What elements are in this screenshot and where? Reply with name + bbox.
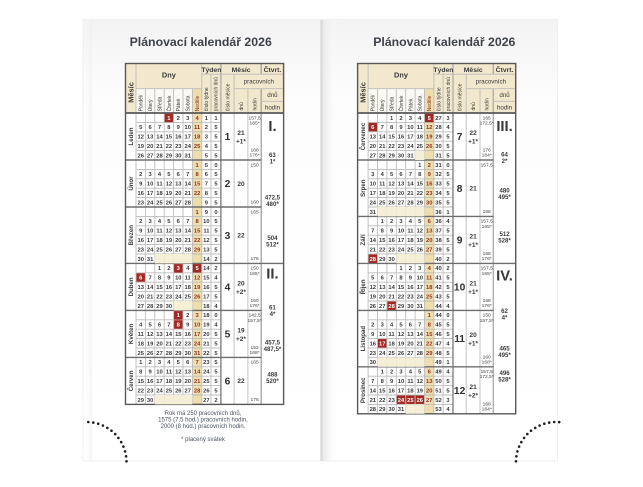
svg-text:13: 13: [175, 182, 182, 188]
svg-text:15: 15: [137, 379, 144, 385]
svg-text:16: 16: [184, 332, 191, 338]
svg-text:11: 11: [156, 229, 163, 235]
svg-text:15: 15: [203, 276, 210, 282]
svg-text:Čtvrt.: Čtvrt.: [264, 65, 282, 74]
svg-text:2: 2: [214, 398, 217, 404]
svg-text:30: 30: [435, 144, 441, 150]
svg-text:14: 14: [370, 388, 377, 394]
svg-text:4*: 4*: [270, 311, 276, 318]
svg-text:15: 15: [194, 229, 201, 235]
svg-text:18: 18: [388, 341, 395, 347]
svg-text:24: 24: [156, 388, 163, 394]
svg-text:+2*: +2*: [236, 336, 246, 343]
svg-text:25: 25: [426, 294, 433, 300]
svg-text:51: 51: [435, 388, 442, 394]
svg-text:160: 160: [251, 200, 259, 206]
svg-text:Týden: Týden: [201, 67, 221, 74]
svg-text:23: 23: [203, 360, 210, 366]
svg-text:22: 22: [203, 351, 209, 357]
svg-text:2: 2: [409, 266, 412, 272]
svg-text:495*: 495*: [498, 352, 511, 359]
svg-text:152: 152: [251, 345, 259, 351]
svg-text:Sobota: Sobota: [186, 95, 192, 111]
svg-text:27: 27: [426, 398, 432, 404]
svg-text:12: 12: [137, 135, 143, 141]
svg-text:7: 7: [167, 323, 170, 329]
svg-text:18: 18: [379, 191, 386, 197]
svg-text:7: 7: [371, 379, 374, 385]
svg-text:23: 23: [398, 144, 405, 150]
svg-text:27: 27: [203, 398, 209, 404]
svg-text:27: 27: [398, 200, 404, 206]
svg-text:25: 25: [184, 294, 191, 300]
svg-text:20: 20: [398, 191, 404, 197]
svg-text:21: 21: [194, 379, 201, 385]
svg-text:19: 19: [417, 238, 424, 244]
svg-text:12: 12: [417, 229, 423, 235]
svg-text:168*: 168*: [250, 350, 260, 356]
svg-text:22: 22: [398, 294, 404, 300]
svg-text:16: 16: [398, 135, 405, 141]
svg-text:29: 29: [194, 247, 201, 253]
svg-text:13: 13: [175, 229, 182, 235]
svg-text:10: 10: [203, 219, 209, 225]
svg-text:24: 24: [147, 200, 154, 206]
svg-text:49: 49: [435, 370, 442, 376]
svg-text:25: 25: [407, 247, 414, 253]
svg-text:20: 20: [469, 332, 477, 339]
svg-text:49: 49: [435, 360, 442, 366]
svg-text:Červen: Červen: [128, 370, 135, 391]
svg-text:číslo týdne: číslo týdne: [204, 87, 210, 111]
svg-text:Pátek: Pátek: [176, 98, 182, 111]
svg-text:24: 24: [398, 398, 405, 404]
svg-text:31: 31: [184, 153, 191, 159]
svg-text:I.: I.: [268, 119, 276, 135]
svg-text:11: 11: [166, 370, 173, 376]
svg-text:25: 25: [417, 144, 424, 150]
svg-text:dnů: dnů: [267, 92, 278, 99]
svg-text:176: 176: [251, 397, 259, 403]
svg-text:26: 26: [166, 247, 173, 253]
svg-text:487,5*: 487,5*: [264, 346, 282, 353]
svg-text:2: 2: [390, 219, 393, 225]
svg-text:13: 13: [398, 182, 405, 188]
svg-text:157,5: 157,5: [481, 266, 494, 272]
svg-text:16: 16: [137, 191, 144, 197]
svg-text:480*: 480*: [266, 201, 279, 208]
svg-text:Měsíc: Měsíc: [359, 82, 368, 103]
svg-text:11: 11: [426, 276, 433, 282]
svg-text:23: 23: [407, 294, 414, 300]
svg-text:21: 21: [407, 191, 414, 197]
svg-text:23: 23: [137, 200, 144, 206]
svg-text:dnů: dnů: [238, 102, 245, 111]
svg-text:12: 12: [203, 238, 209, 244]
svg-text:38: 38: [435, 238, 442, 244]
svg-text:Týden: Týden: [433, 67, 453, 74]
svg-text:25: 25: [156, 247, 163, 253]
svg-text:2: 2: [139, 219, 142, 225]
svg-text:2: 2: [390, 370, 393, 376]
svg-text:20: 20: [175, 191, 181, 197]
svg-text:20: 20: [237, 181, 245, 188]
svg-text:10: 10: [398, 379, 404, 385]
svg-text:12: 12: [426, 125, 432, 131]
svg-text:Dny: Dny: [162, 71, 177, 80]
svg-text:24: 24: [203, 370, 210, 376]
svg-text:10: 10: [147, 229, 153, 235]
svg-text:26: 26: [137, 153, 144, 159]
svg-text:17: 17: [194, 332, 200, 338]
svg-text:25: 25: [388, 351, 395, 357]
svg-text:46: 46: [435, 332, 442, 338]
svg-text:17: 17: [175, 285, 181, 291]
svg-text:26: 26: [426, 144, 433, 150]
svg-text:184*: 184*: [482, 406, 492, 412]
svg-text:3: 3: [225, 231, 231, 242]
svg-text:7: 7: [371, 229, 374, 235]
svg-text:43: 43: [435, 294, 442, 300]
svg-text:20: 20: [175, 238, 181, 244]
svg-text:17: 17: [398, 238, 404, 244]
svg-text:23: 23: [175, 144, 182, 150]
svg-text:1*: 1*: [270, 159, 276, 166]
svg-text:II.: II.: [266, 267, 278, 283]
svg-text:2: 2: [446, 257, 449, 263]
svg-text:číslo měsíce: číslo měsíce: [457, 83, 463, 111]
svg-text:29: 29: [379, 257, 386, 263]
svg-text:12: 12: [454, 386, 466, 397]
svg-text:21: 21: [156, 144, 163, 150]
svg-text:Srpen: Srpen: [360, 179, 367, 197]
svg-text:Pátek: Pátek: [408, 98, 414, 111]
svg-text:20: 20: [147, 144, 153, 150]
svg-text:16: 16: [426, 182, 433, 188]
svg-text:17: 17: [147, 191, 153, 197]
svg-text:19: 19: [175, 379, 182, 385]
svg-text:Plánovací kalendář 2026: Plánovací kalendář 2026: [130, 35, 272, 49]
svg-text:6: 6: [225, 377, 231, 388]
svg-text:176: 176: [251, 256, 259, 262]
svg-text:21: 21: [379, 144, 386, 150]
svg-text:24: 24: [194, 341, 201, 347]
svg-text:16: 16: [175, 135, 182, 141]
svg-text:22: 22: [388, 144, 394, 150]
svg-text:Úterý: Úterý: [147, 99, 154, 111]
svg-text:17: 17: [417, 285, 423, 291]
svg-text:18: 18: [156, 191, 163, 197]
svg-text:31: 31: [194, 351, 201, 357]
svg-text:27: 27: [137, 304, 143, 310]
svg-text:160: 160: [483, 354, 491, 360]
svg-text:7: 7: [418, 323, 421, 329]
svg-text:19: 19: [417, 388, 424, 394]
svg-text:Čtvrtek: Čtvrtek: [398, 95, 405, 111]
svg-text:16: 16: [137, 238, 144, 244]
svg-text:13: 13: [426, 379, 433, 385]
svg-text:28: 28: [435, 125, 442, 131]
svg-text:18: 18: [407, 388, 414, 394]
svg-text:7: 7: [186, 219, 189, 225]
svg-text:Středa: Středa: [390, 96, 396, 111]
svg-text:14: 14: [417, 332, 424, 338]
svg-text:26: 26: [166, 200, 173, 206]
svg-text:165*: 165*: [250, 120, 260, 126]
svg-text:13: 13: [370, 135, 377, 141]
svg-text:22: 22: [469, 130, 477, 137]
svg-text:31: 31: [407, 153, 414, 159]
svg-text:157,5: 157,5: [481, 162, 494, 168]
svg-text:37: 37: [435, 229, 441, 235]
svg-text:32: 32: [435, 172, 441, 178]
svg-text:13: 13: [156, 332, 163, 338]
svg-text:30: 30: [407, 304, 413, 310]
svg-text:22: 22: [156, 294, 162, 300]
svg-text:2: 2: [205, 125, 208, 131]
svg-text:12: 12: [175, 370, 181, 376]
svg-text:17: 17: [407, 135, 413, 141]
svg-text:21: 21: [147, 294, 154, 300]
svg-text:17: 17: [370, 191, 376, 197]
svg-text:15: 15: [426, 332, 433, 338]
svg-text:23: 23: [184, 341, 191, 347]
svg-text:0: 0: [214, 163, 217, 169]
svg-text:19: 19: [147, 341, 154, 347]
svg-text:20: 20: [237, 281, 245, 288]
svg-text:15: 15: [388, 135, 395, 141]
svg-text:17: 17: [156, 379, 162, 385]
svg-text:14: 14: [203, 257, 210, 263]
svg-text:11: 11: [417, 125, 424, 131]
svg-text:22: 22: [379, 398, 385, 404]
svg-text:26: 26: [203, 388, 210, 394]
svg-text:Středa: Středa: [157, 96, 163, 111]
svg-text:pracovních: pracovních: [476, 79, 507, 86]
svg-text:Měsíc: Měsíc: [126, 82, 135, 103]
svg-text:176*: 176*: [482, 256, 492, 262]
svg-text:26: 26: [388, 200, 395, 206]
svg-text:+2*: +2*: [468, 392, 478, 399]
svg-text:31: 31: [370, 210, 377, 216]
svg-text:157,5: 157,5: [248, 115, 261, 121]
svg-text:157,5: 157,5: [481, 219, 494, 225]
svg-text:495*: 495*: [498, 194, 511, 201]
svg-text:28: 28: [166, 351, 173, 357]
svg-text:18: 18: [407, 238, 414, 244]
svg-text:165: 165: [483, 115, 491, 121]
svg-text:0: 0: [446, 313, 449, 319]
svg-text:12: 12: [166, 229, 172, 235]
svg-text:Červenec: Červenec: [360, 122, 367, 150]
svg-text:18: 18: [417, 135, 424, 141]
svg-text:21: 21: [370, 398, 377, 404]
svg-text:2: 2: [371, 323, 374, 329]
svg-text:Pondělí: Pondělí: [139, 94, 145, 112]
svg-text:+1*: +1*: [468, 341, 478, 348]
svg-text:28: 28: [194, 388, 201, 394]
svg-text:528*: 528*: [498, 237, 511, 244]
svg-text:10: 10: [454, 283, 466, 294]
svg-text:30: 30: [388, 257, 394, 263]
svg-text:0: 0: [446, 163, 449, 169]
svg-text:25: 25: [379, 200, 386, 206]
svg-text:26: 26: [175, 388, 182, 394]
svg-text:12: 12: [370, 285, 376, 291]
svg-text:22: 22: [194, 238, 200, 244]
svg-text:22: 22: [237, 233, 245, 240]
svg-text:11: 11: [379, 182, 386, 188]
svg-text:42: 42: [435, 285, 441, 291]
svg-text:Neděle: Neděle: [195, 95, 201, 111]
svg-text:41: 41: [435, 276, 442, 282]
svg-text:23: 23: [166, 294, 173, 300]
svg-text:17: 17: [147, 238, 153, 244]
svg-text:14: 14: [203, 266, 210, 272]
svg-text:26: 26: [147, 351, 154, 357]
svg-text:30: 30: [388, 407, 394, 413]
svg-text:26: 26: [417, 247, 424, 253]
svg-text:0: 0: [214, 210, 217, 216]
svg-text:40: 40: [435, 257, 441, 263]
svg-text:21: 21: [184, 191, 191, 197]
svg-text:53: 53: [435, 407, 442, 413]
svg-text:28: 28: [370, 257, 377, 263]
svg-text:2: 2: [177, 116, 180, 122]
svg-text:24: 24: [407, 144, 414, 150]
svg-text:165*: 165*: [250, 271, 260, 277]
svg-text:12: 12: [166, 182, 172, 188]
svg-text:13: 13: [147, 135, 154, 141]
svg-text:10: 10: [156, 370, 162, 376]
svg-text:4: 4: [225, 283, 231, 294]
svg-text:7: 7: [148, 276, 151, 282]
svg-text:28: 28: [147, 304, 154, 310]
svg-text:Březen: Březen: [128, 225, 135, 246]
svg-text:29: 29: [175, 351, 182, 357]
svg-text:15: 15: [175, 332, 182, 338]
svg-text:2: 2: [167, 266, 170, 272]
svg-text:15: 15: [194, 182, 201, 188]
svg-text:15: 15: [379, 238, 386, 244]
svg-text:18: 18: [166, 379, 173, 385]
svg-text:14: 14: [184, 182, 191, 188]
svg-text:160: 160: [251, 298, 259, 304]
svg-text:29: 29: [435, 135, 442, 141]
svg-text:30: 30: [426, 200, 432, 206]
svg-text:28: 28: [417, 351, 424, 357]
svg-text:10: 10: [407, 125, 413, 131]
svg-text:31: 31: [435, 153, 442, 159]
svg-text:28: 28: [407, 200, 414, 206]
svg-text:27: 27: [379, 304, 385, 310]
svg-text:Pondělí: Pondělí: [371, 94, 377, 112]
svg-text:30: 30: [166, 304, 172, 310]
svg-text:10: 10: [370, 182, 376, 188]
svg-text:27: 27: [407, 351, 413, 357]
svg-text:22: 22: [426, 341, 432, 347]
svg-text:16: 16: [203, 285, 210, 291]
svg-text:7: 7: [195, 360, 198, 366]
svg-text:24: 24: [370, 200, 377, 206]
svg-text:33: 33: [435, 182, 442, 188]
svg-text:21: 21: [469, 186, 477, 193]
svg-text:2*: 2*: [502, 158, 508, 165]
svg-text:168: 168: [483, 298, 491, 304]
svg-text:+2*: +2*: [236, 289, 246, 296]
svg-text:27: 27: [175, 200, 181, 206]
svg-text:168: 168: [251, 148, 259, 154]
svg-text:16: 16: [147, 379, 154, 385]
svg-text:IV.: IV.: [496, 268, 513, 284]
svg-text:39: 39: [435, 247, 442, 253]
svg-text:+1*: +1*: [468, 242, 478, 249]
svg-text:30: 30: [147, 398, 153, 404]
svg-text:+1*: +1*: [236, 139, 246, 146]
svg-text:30: 30: [370, 360, 376, 366]
svg-text:27: 27: [175, 247, 181, 253]
svg-text:14: 14: [147, 285, 154, 291]
svg-text:30: 30: [184, 351, 190, 357]
svg-text:528*: 528*: [498, 376, 511, 383]
svg-text:50: 50: [435, 379, 441, 385]
svg-text:Říjen: Říjen: [359, 279, 367, 294]
svg-text:29: 29: [379, 407, 386, 413]
svg-text:Plánovací kalendář 2026: Plánovací kalendář 2026: [373, 35, 515, 49]
svg-text:Duben: Duben: [128, 277, 135, 296]
svg-text:7: 7: [381, 125, 384, 131]
svg-text:21: 21: [184, 238, 191, 244]
svg-text:20: 20: [184, 379, 190, 385]
svg-text:29: 29: [417, 200, 424, 206]
svg-text:157,5*: 157,5*: [480, 318, 494, 324]
svg-text:dnů: dnů: [470, 102, 477, 111]
svg-text:44: 44: [435, 313, 442, 319]
svg-text:36: 36: [435, 219, 442, 225]
svg-text:25: 25: [137, 351, 144, 357]
svg-text:1: 1: [225, 132, 231, 143]
svg-text:23: 23: [137, 247, 144, 253]
svg-text:15: 15: [156, 285, 163, 291]
svg-text:23: 23: [370, 351, 377, 357]
svg-text:52: 52: [435, 398, 441, 404]
svg-text:34: 34: [435, 191, 442, 197]
svg-text:19: 19: [166, 238, 173, 244]
svg-text:7: 7: [158, 125, 161, 131]
svg-text:47: 47: [435, 341, 441, 347]
svg-text:7: 7: [205, 182, 208, 188]
svg-text:26: 26: [370, 304, 377, 310]
svg-text:176: 176: [483, 148, 491, 154]
svg-text:520*: 520*: [266, 378, 279, 385]
svg-text:150: 150: [483, 313, 491, 319]
svg-text:28: 28: [370, 407, 377, 413]
svg-text:+1*: +1*: [468, 289, 478, 296]
svg-text:21: 21: [469, 234, 477, 241]
svg-text:III.: III.: [496, 119, 512, 135]
svg-text:25: 25: [194, 144, 201, 150]
svg-text:18: 18: [203, 304, 210, 310]
svg-text:142,5: 142,5: [248, 313, 261, 319]
svg-text:4*: 4*: [502, 314, 508, 321]
svg-text:Září: Září: [360, 234, 367, 245]
svg-text:11: 11: [407, 379, 414, 385]
svg-text:13: 13: [379, 285, 386, 291]
svg-text:* placený svátek: * placený svátek: [181, 437, 226, 443]
svg-text:26: 26: [417, 398, 424, 404]
svg-text:15: 15: [417, 182, 424, 188]
svg-text:16: 16: [388, 388, 395, 394]
